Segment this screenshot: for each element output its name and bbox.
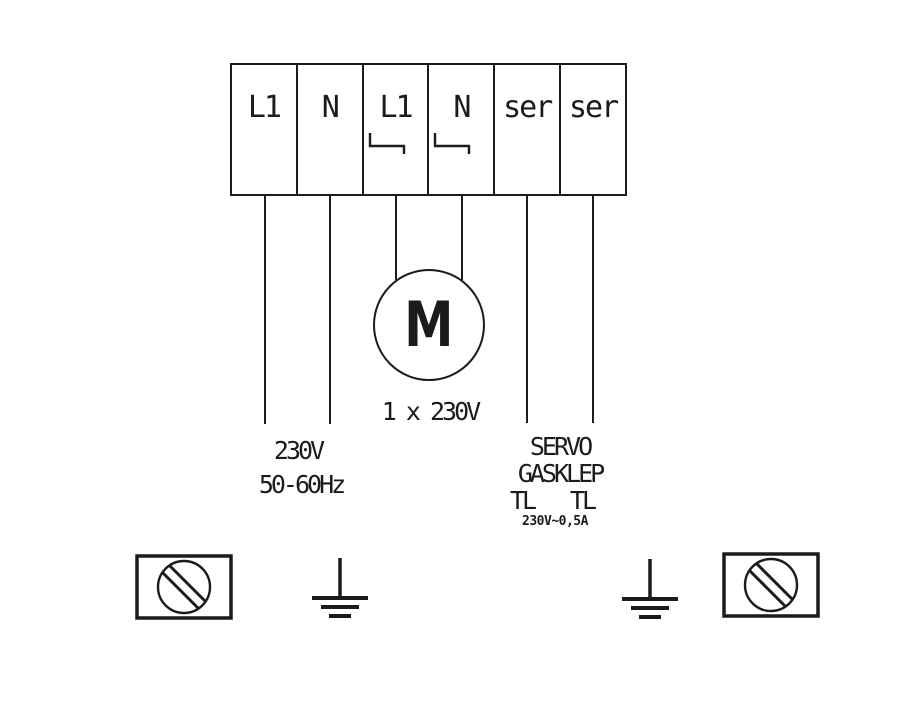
wire-ser-2 — [592, 195, 594, 423]
terminal-ser-1: ser — [495, 65, 561, 194]
servo-tl-row: TL TL — [490, 487, 630, 514]
terminal-label: ser — [569, 93, 617, 123]
terminal-label: L1 — [248, 93, 280, 123]
wire-l1-motor — [395, 195, 397, 280]
slotted-screw-icon-right — [722, 552, 820, 618]
terminal-label: ser — [503, 93, 551, 123]
terminal-l1-motor: L1 — [364, 65, 430, 194]
servo-rating-label: 230V~0,5A — [490, 514, 630, 530]
slotted-screw-icon-left — [135, 554, 233, 620]
motor-rating-label: 1 x 230V — [360, 397, 500, 426]
tl-left-label: TL — [510, 487, 534, 514]
servo-device-label: GASKLEP — [490, 460, 630, 487]
terminal-label: L1 — [380, 93, 412, 123]
mains-frequency-label: 50-60Hz — [228, 470, 374, 499]
wire-l1-mains — [264, 195, 266, 424]
mains-voltage-label: 230V — [228, 436, 368, 465]
jumper-bracket-icon — [431, 131, 473, 157]
wire-n-motor — [461, 195, 463, 280]
wiring-diagram: L1 N L1 N ser ser M 1 x 230V — [0, 0, 900, 703]
wire-n-mains — [329, 195, 331, 424]
terminal-label: N — [453, 93, 469, 123]
motor-letter: M — [404, 294, 453, 356]
terminal-ser-2: ser — [561, 65, 625, 194]
servo-name-label: SERVO — [490, 433, 630, 460]
motor-symbol: M — [373, 269, 485, 381]
terminal-n-mains: N — [298, 65, 364, 194]
earth-ground-icon-left — [310, 556, 370, 620]
terminal-n-motor: N — [429, 65, 495, 194]
wire-ser-1 — [526, 195, 528, 423]
earth-ground-icon-right — [620, 557, 680, 621]
jumper-bracket-icon — [366, 131, 408, 157]
terminal-label: N — [322, 93, 338, 123]
terminal-block: L1 N L1 N ser ser — [230, 63, 627, 196]
terminal-l1-mains: L1 — [232, 65, 298, 194]
servo-label-block: SERVO GASKLEP TL TL 230V~0,5A — [490, 433, 630, 530]
tl-right-label: TL — [570, 487, 594, 514]
